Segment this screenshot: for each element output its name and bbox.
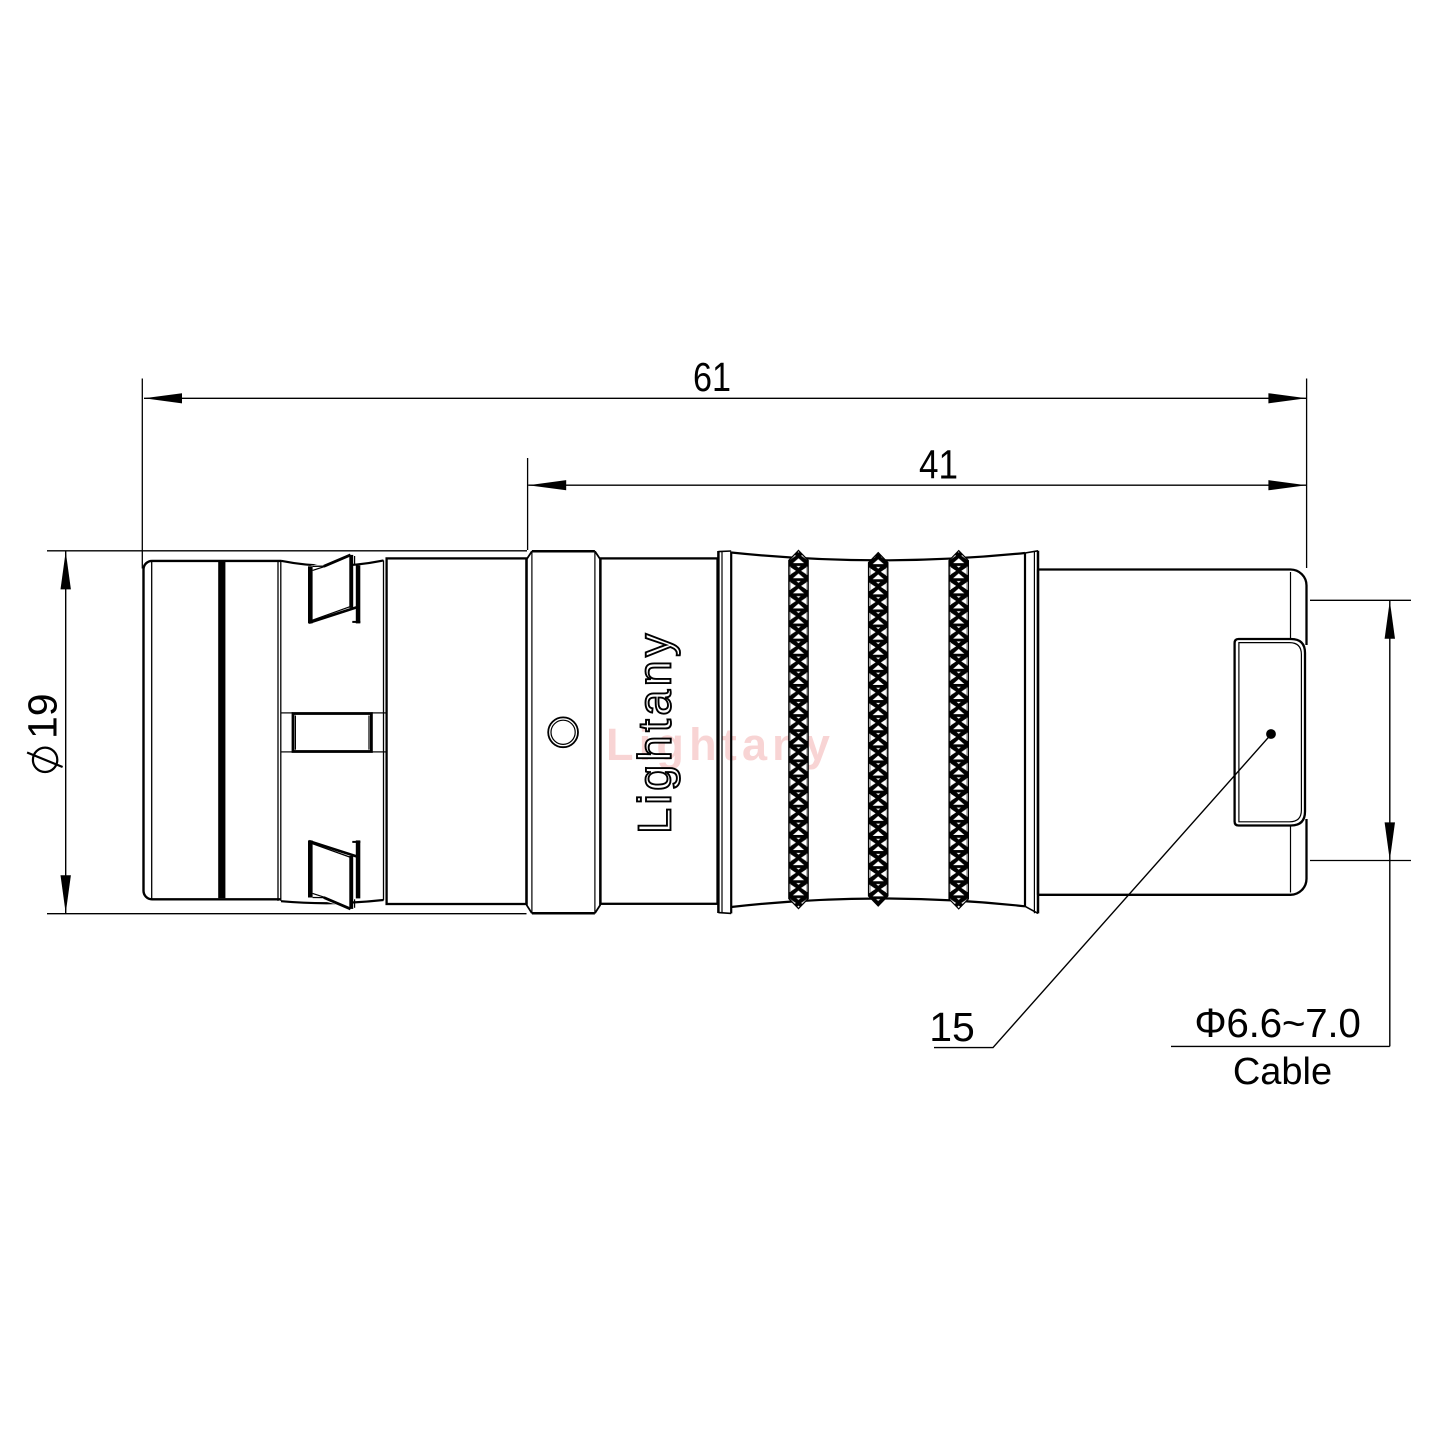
- svg-text:61: 61: [693, 354, 731, 400]
- svg-text:41: 41: [919, 442, 958, 488]
- svg-text:19: 19: [20, 693, 66, 739]
- svg-text:Φ6.6~7.0: Φ6.6~7.0: [1194, 1000, 1360, 1046]
- svg-text:15: 15: [929, 1004, 975, 1050]
- svg-text:Lightany: Lightany: [629, 630, 681, 834]
- svg-text:Cable: Cable: [1233, 1051, 1332, 1093]
